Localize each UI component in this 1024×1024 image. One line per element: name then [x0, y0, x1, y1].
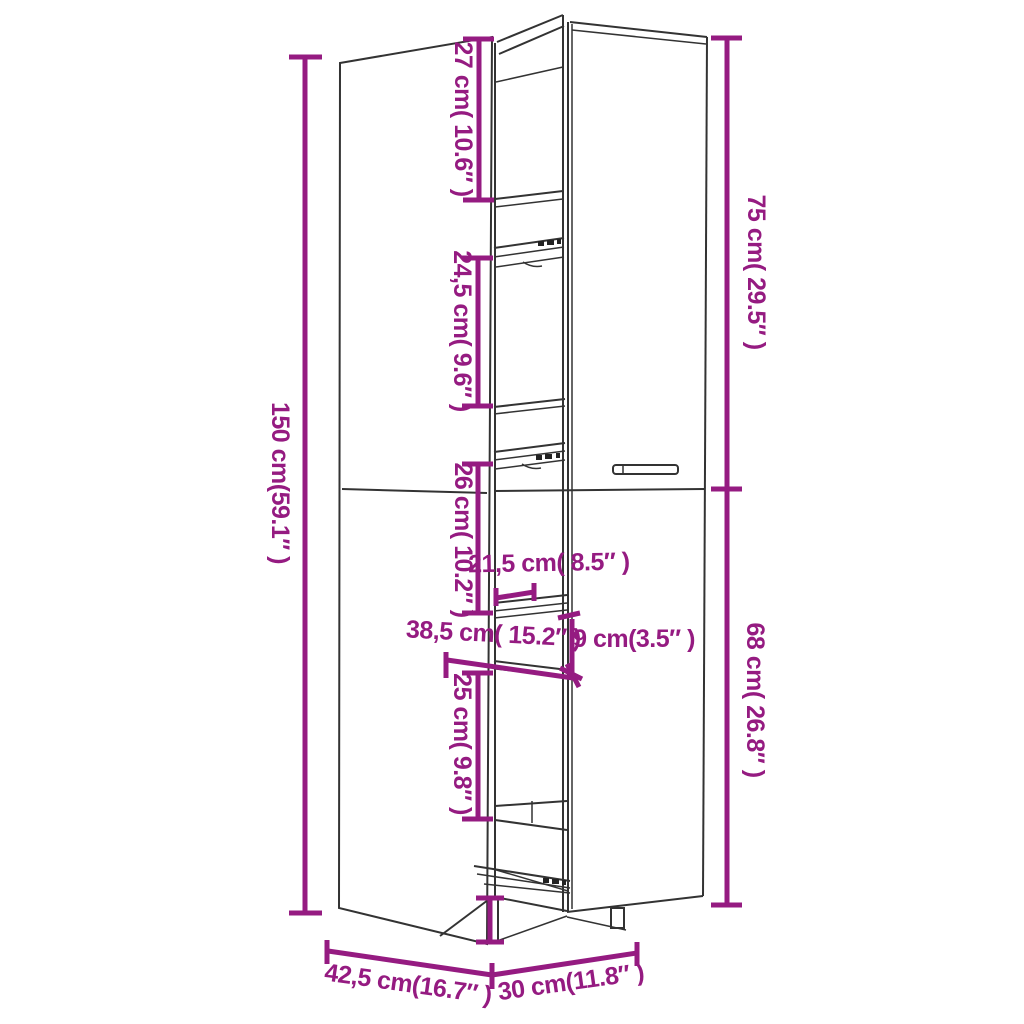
cabinet-base — [495, 897, 567, 941]
dimension-label-second-compartment: 24,5 cm( 9.6″ ) — [448, 250, 476, 412]
front-door — [567, 22, 707, 930]
dimension-total-height: 150 cm(59.1″ ) — [266, 57, 322, 914]
bottom-slide-rails — [440, 866, 570, 936]
middle-shelf — [494, 399, 565, 414]
cabinet-drawing — [339, 15, 707, 944]
cabinet-foot — [611, 908, 624, 928]
dimension-third-compartment: 26 cm( 10.2″ ) — [449, 462, 493, 617]
dimension-lines: 150 cm(59.1″ ) 27 cm( 10.6″ ) 24,5 cm( 9… — [266, 38, 770, 1010]
dimension-label-drawer-width: 21,5 cm( 8.5″ ) — [468, 548, 630, 579]
dimension-drawer-height: 9 cm(3.5″ ) — [558, 613, 695, 679]
dimension-label-total-height: 150 cm(59.1″ ) — [266, 402, 294, 564]
dimension-depth: 42,5 cm(16.7″ ) — [323, 940, 494, 1010]
dimension-label-third-compartment: 26 cm( 10.2″ ) — [449, 462, 477, 617]
dimension-label-upper-door: 75 cm( 29.5″ ) — [742, 194, 770, 349]
bottom-basket — [495, 801, 567, 830]
dimension-label-top-compartment: 27 cm( 10.6″ ) — [449, 41, 477, 196]
mid-division-line — [494, 489, 705, 491]
dimension-label-fourth-compartment: 25 cm( 9.8″ ) — [448, 673, 476, 815]
dimension-width: 30 cm(11.8″ ) — [492, 942, 646, 1006]
dimension-upper-door: 75 cm( 29.5″ ) — [711, 38, 770, 489]
dimension-lower-door: 68 cm( 26.8″ ) — [711, 489, 769, 905]
dimension-second-compartment: 24,5 cm( 9.6″ ) — [448, 250, 493, 412]
second-drawer — [494, 443, 565, 469]
dimension-fourth-compartment: 25 cm( 9.8″ ) — [448, 673, 493, 819]
pullout-column — [495, 15, 564, 912]
dimension-label-depth: 42,5 cm(16.7″ ) — [323, 958, 494, 1009]
cabinet-dimension-diagram: 150 cm(59.1″ ) 27 cm( 10.6″ ) 24,5 cm( 9… — [0, 0, 1024, 1024]
dimension-label-lower-door: 68 cm( 26.8″ ) — [741, 622, 769, 777]
dimension-plinth-height — [476, 898, 504, 942]
dimension-label-drawer-depth: 38,5 cm( 15.2″ ) — [405, 615, 581, 652]
top-shelf — [495, 191, 563, 207]
dimension-label-drawer-height: 9 cm(3.5″ ) — [573, 625, 695, 653]
dimension-drawer-depth: 38,5 cm( 15.2″ ) — [405, 615, 581, 687]
dimension-top-compartment: 27 cm( 10.6″ ) — [449, 39, 494, 200]
diagram-canvas: 150 cm(59.1″ ) 27 cm( 10.6″ ) 24,5 cm( 9… — [0, 0, 1024, 1024]
upper-drawer — [494, 238, 564, 267]
